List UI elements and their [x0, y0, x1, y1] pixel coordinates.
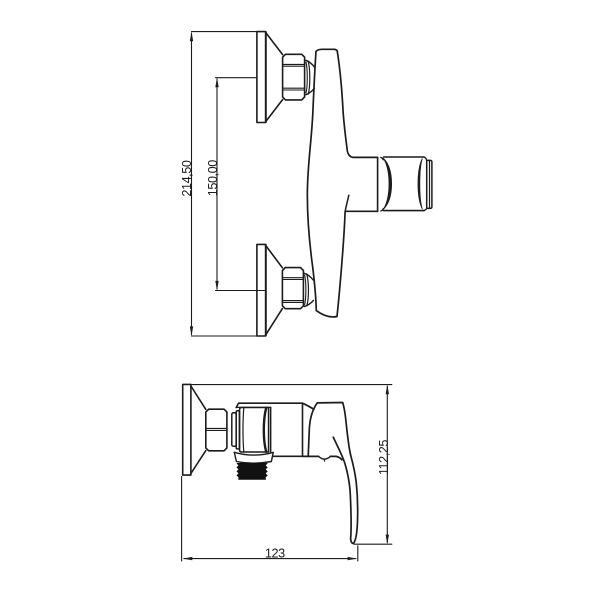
svg-text:123: 123 [265, 546, 285, 560]
svg-text:214,50: 214,50 [180, 160, 194, 196]
svg-text:150,00: 150,00 [206, 160, 220, 196]
svg-text:112,25: 112,25 [377, 440, 391, 476]
